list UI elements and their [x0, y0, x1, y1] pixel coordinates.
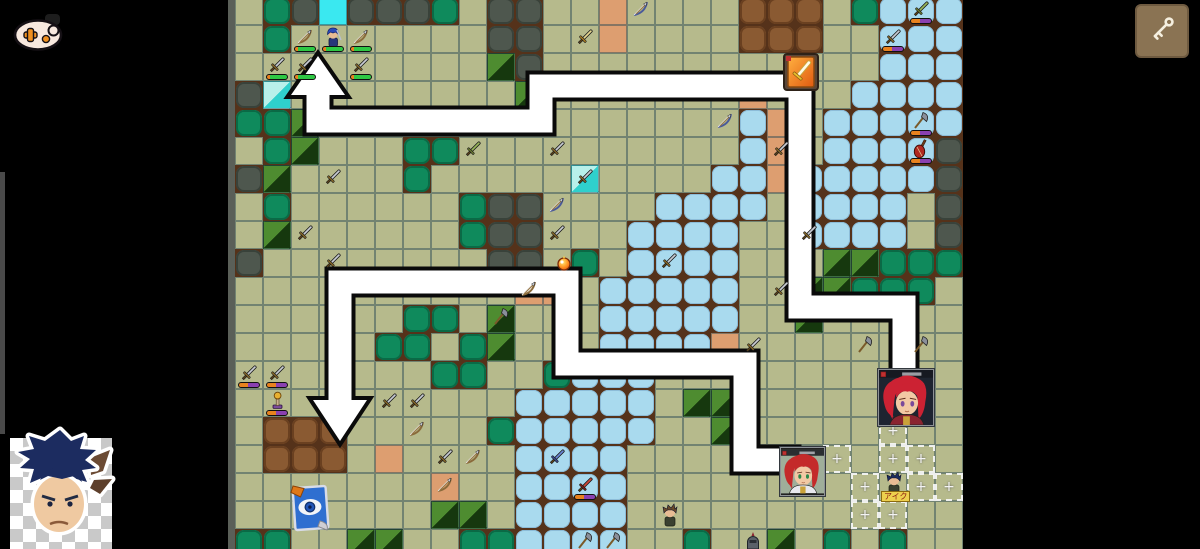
loose-weapon-sword	[319, 165, 347, 193]
hp-bar-enemy	[266, 410, 288, 416]
hp-bar-enemy	[238, 382, 260, 388]
range-tile[interactable]: +	[907, 473, 935, 501]
loose-weapon-sword	[375, 389, 403, 417]
loose-weapon-bow	[431, 473, 459, 501]
enemy-unit-lamp[interactable]	[263, 389, 291, 417]
loose-weapon-bow_blue	[543, 193, 571, 221]
range-tile[interactable]: +	[851, 473, 879, 501]
loose-weapon-axe	[487, 305, 515, 333]
enemy-unit-axe[interactable]	[599, 529, 627, 549]
range-tile[interactable]: +	[879, 501, 907, 529]
loose-weapon-bow_blue	[711, 109, 739, 137]
hp-bar-enemy	[266, 382, 288, 388]
hp-bar-enemy	[910, 158, 932, 164]
portrait-red-girl-dark[interactable]	[878, 369, 934, 426]
map-overlay-layer: +++++++++アイク	[0, 0, 1200, 549]
range-tile[interactable]: +	[851, 501, 879, 529]
game-screen: +++++++++アイク	[0, 0, 1200, 549]
hp-bar-player	[294, 74, 316, 80]
hp-bar-player	[350, 74, 372, 80]
hp-bar-enemy	[882, 46, 904, 52]
range-tile[interactable]: +	[935, 473, 963, 501]
player-unit-hero[interactable]	[319, 25, 347, 53]
enemy-unit-sword_green[interactable]	[907, 0, 935, 25]
enemy-unit-sword[interactable]	[879, 25, 907, 53]
hp-bar-player	[266, 74, 288, 80]
player-unit-sword[interactable]	[347, 53, 375, 81]
loose-weapon-axe	[851, 333, 879, 361]
loose-weapon-sword	[767, 277, 795, 305]
player-unit-sword[interactable]	[291, 53, 319, 81]
player-unit-bow[interactable]	[347, 25, 375, 53]
hp-bar-player	[322, 46, 344, 52]
loose-weapon-bow	[515, 277, 543, 305]
enemy-unit-violin[interactable]	[907, 137, 935, 165]
hp-bar-enemy	[910, 130, 932, 136]
loose-weapon-bow_blue	[627, 0, 655, 25]
player-unit-sword[interactable]	[263, 53, 291, 81]
hp-bar-enemy	[910, 18, 932, 24]
npc-villager[interactable]	[655, 501, 683, 529]
loose-weapon-bow	[403, 417, 431, 445]
loose-weapon-sword	[291, 221, 319, 249]
loose-weapon-sword	[319, 249, 347, 277]
enemy-unit-sword_red[interactable]	[571, 473, 599, 501]
loose-weapon-sword	[431, 445, 459, 473]
enemy-unit-knight[interactable]	[739, 529, 767, 549]
enemy-unit-sword[interactable]	[263, 361, 291, 389]
hp-bar-enemy	[574, 494, 596, 500]
unit-name-tag: アイク	[881, 491, 910, 502]
enemy-unit-axe[interactable]	[571, 529, 599, 549]
loose-weapon-axe	[907, 333, 935, 361]
loose-weapon-bow	[459, 445, 487, 473]
loose-weapon-sword	[543, 221, 571, 249]
player-unit-bow[interactable]	[291, 25, 319, 53]
hp-bar-player	[350, 46, 372, 52]
loose-weapon-sword	[795, 221, 823, 249]
hp-bar-player	[294, 46, 316, 52]
loose-weapon-sword	[403, 389, 431, 417]
item-shield-badge[interactable]	[782, 52, 820, 96]
loose-weapon-sword	[543, 137, 571, 165]
portrait-red-girl-light[interactable]	[780, 447, 825, 496]
item-fire-orb[interactable]	[556, 255, 572, 276]
range-tile[interactable]: +	[907, 445, 935, 473]
loose-weapon-sword	[739, 333, 767, 361]
range-tile[interactable]: +	[823, 445, 851, 473]
enemy-unit-sword[interactable]	[235, 361, 263, 389]
item-eye-card[interactable]	[288, 483, 334, 537]
loose-weapon-sword	[655, 249, 683, 277]
enemy-unit-axe[interactable]	[907, 109, 935, 137]
loose-weapon-sword_blue	[543, 445, 571, 473]
loose-weapon-sword_gold	[571, 25, 599, 53]
loose-weapon-sword	[767, 137, 795, 165]
loose-weapon-sword	[571, 165, 599, 193]
loose-weapon-sword_green	[459, 137, 487, 165]
